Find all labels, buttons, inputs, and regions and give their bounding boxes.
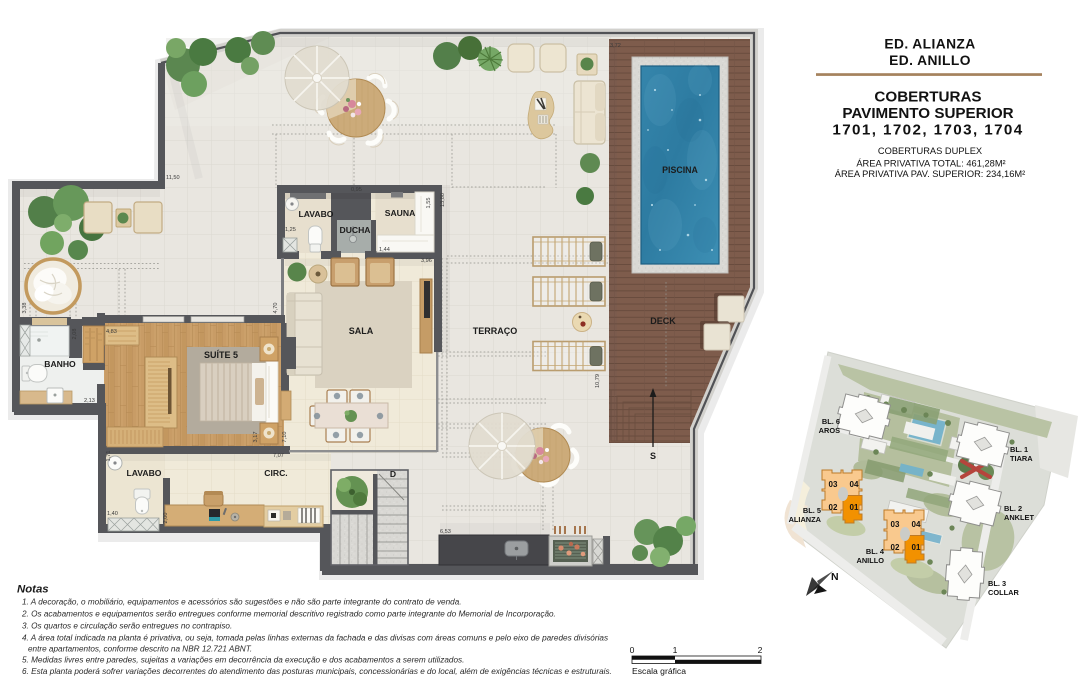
svg-text:COBERTURAS: COBERTURAS xyxy=(874,88,981,105)
svg-text:BL. 3: BL. 3 xyxy=(988,579,1006,588)
svg-text:ÁREA PRIVATIVA PAV. SUPERIOR:: ÁREA PRIVATIVA PAV. SUPERIOR: 234,16M² xyxy=(835,169,1026,179)
svg-text:SUÍTE 5: SUÍTE 5 xyxy=(204,350,238,360)
svg-text:DECK: DECK xyxy=(650,316,676,326)
svg-text:3,72: 3,72 xyxy=(610,43,621,49)
svg-text:Escala gráfica: Escala gráfica xyxy=(632,666,686,676)
svg-text:6,53: 6,53 xyxy=(440,529,451,535)
svg-text:01: 01 xyxy=(850,503,859,512)
svg-text:D: D xyxy=(390,469,396,479)
svg-text:04: 04 xyxy=(912,520,921,529)
svg-text:11,50: 11,50 xyxy=(166,175,180,181)
svg-text:5. Medidas livres entre parede: 5. Medidas livres entre paredes, sujeita… xyxy=(22,656,464,665)
svg-text:03: 03 xyxy=(829,480,838,489)
svg-text:1,44: 1,44 xyxy=(379,247,390,253)
svg-text:01: 01 xyxy=(912,543,921,552)
svg-text:3,17: 3,17 xyxy=(253,432,259,443)
svg-text:2. Os acabamentos e equipament: 2. Os acabamentos e equipamentos serão e… xyxy=(21,610,556,619)
svg-text:02: 02 xyxy=(891,543,900,552)
svg-text:2: 2 xyxy=(758,645,763,655)
svg-text:BANHO: BANHO xyxy=(44,359,76,369)
svg-text:2,00: 2,00 xyxy=(163,513,169,524)
svg-text:TIARA: TIARA xyxy=(1010,454,1033,463)
svg-text:3. Os quartos e circulação ser: 3. Os quartos e circulação serão entregu… xyxy=(22,622,232,631)
svg-text:0: 0 xyxy=(630,645,635,655)
svg-text:1701, 1702, 1703, 1704: 1701, 1702, 1703, 1704 xyxy=(832,122,1023,139)
svg-text:Notas: Notas xyxy=(17,584,49,596)
svg-text:3,38: 3,38 xyxy=(22,303,28,314)
svg-text:LAVABO: LAVABO xyxy=(298,209,333,219)
svg-text:TERRAÇO: TERRAÇO xyxy=(473,326,518,336)
svg-text:1,55: 1,55 xyxy=(426,198,432,209)
svg-text:BL. 1: BL. 1 xyxy=(1010,445,1028,454)
svg-text:1,25: 1,25 xyxy=(285,227,296,233)
svg-text:entre apartamentos, conforme d: entre apartamentos, conforme descrito na… xyxy=(28,645,252,654)
svg-text:PAVIMENTO SUPERIOR: PAVIMENTO SUPERIOR xyxy=(842,105,1013,122)
svg-text:3,96: 3,96 xyxy=(421,258,432,264)
svg-text:1: 1 xyxy=(673,645,678,655)
svg-text:ED. ALIANZA: ED. ALIANZA xyxy=(884,36,975,51)
svg-text:COLLAR: COLLAR xyxy=(988,588,1019,597)
svg-text:1,71: 1,71 xyxy=(106,451,112,462)
svg-text:ALIANZA: ALIANZA xyxy=(789,515,822,524)
svg-text:0,95: 0,95 xyxy=(351,187,362,193)
svg-text:7,07: 7,07 xyxy=(273,453,284,459)
svg-text:N: N xyxy=(831,571,839,583)
svg-text:ÁREA PRIVATIVA TOTAL: 461,28M²: ÁREA PRIVATIVA TOTAL: 461,28M² xyxy=(856,158,1005,168)
svg-text:4,70: 4,70 xyxy=(273,303,279,314)
svg-text:BL. 4: BL. 4 xyxy=(866,547,885,556)
svg-text:10,79: 10,79 xyxy=(595,374,601,388)
svg-text:SALA: SALA xyxy=(349,326,374,336)
svg-text:PISCINA: PISCINA xyxy=(662,165,698,175)
svg-text:04: 04 xyxy=(850,480,859,489)
svg-text:6. Esta planta poderá sofrer v: 6. Esta planta poderá sofrer variações d… xyxy=(22,667,612,676)
svg-text:4. A área total indicada na pl: 4. A área total indicada na planta é pri… xyxy=(22,634,608,643)
svg-text:02: 02 xyxy=(829,503,838,512)
svg-text:SAUNA: SAUNA xyxy=(385,208,416,218)
svg-text:LAVABO: LAVABO xyxy=(126,468,161,478)
svg-text:AROS: AROS xyxy=(819,426,840,435)
svg-text:4,83: 4,83 xyxy=(106,329,117,335)
svg-text:BL. 6: BL. 6 xyxy=(822,417,840,426)
svg-text:7,10: 7,10 xyxy=(282,432,288,443)
svg-text:COBERTURAS DUPLEX: COBERTURAS DUPLEX xyxy=(878,146,982,156)
svg-text:1,40: 1,40 xyxy=(107,511,118,517)
svg-text:2,13: 2,13 xyxy=(84,398,95,404)
svg-text:DUCHA: DUCHA xyxy=(339,225,370,235)
svg-text:BL. 5: BL. 5 xyxy=(803,506,821,515)
svg-text:S: S xyxy=(650,451,656,461)
svg-text:CIRC.: CIRC. xyxy=(264,468,287,478)
svg-text:BL. 2: BL. 2 xyxy=(1004,504,1022,513)
svg-text:03: 03 xyxy=(891,520,900,529)
svg-text:13,80: 13,80 xyxy=(440,193,446,207)
svg-text:ED. ANILLO: ED. ANILLO xyxy=(889,53,971,68)
svg-text:ANILLO: ANILLO xyxy=(856,556,884,565)
svg-text:1. A decoração, o mobiliário,: 1. A decoração, o mobiliário, equipament… xyxy=(22,598,462,607)
svg-text:2,08: 2,08 xyxy=(72,329,78,340)
svg-text:ANKLET: ANKLET xyxy=(1004,513,1034,522)
